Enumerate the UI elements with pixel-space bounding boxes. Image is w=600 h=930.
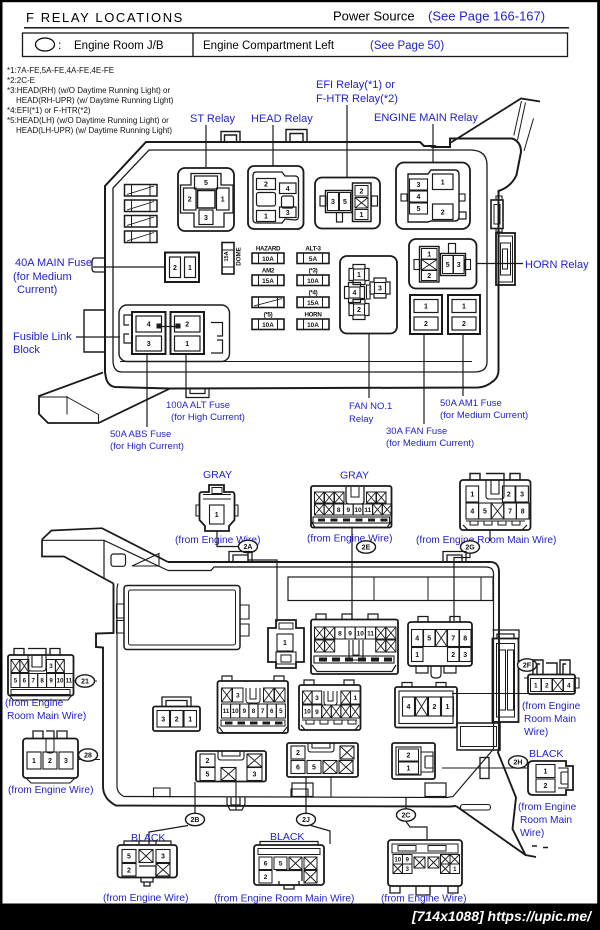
svg-text:2C: 2C [402,813,411,820]
svg-text:30A FAN Fuse: 30A FAN Fuse [386,426,447,437]
svg-text:15A: 15A [307,300,319,307]
svg-text:11: 11 [364,507,371,514]
svg-text:3: 3 [49,663,53,670]
svg-text:Power Source: Power Source [333,9,415,24]
svg-text:6: 6 [296,765,300,772]
svg-text:HEAD(RH-UPR) (w/ Daytime Runni: HEAD(RH-UPR) (w/ Daytime Running Light) [16,96,174,105]
svg-text:8: 8 [40,678,44,685]
svg-text:7: 7 [32,678,36,685]
svg-text:2: 2 [427,273,431,280]
svg-text:2: 2 [507,492,511,499]
svg-text:4: 4 [286,186,290,193]
svg-text:2: 2 [175,716,179,723]
svg-text:5: 5 [127,854,131,861]
svg-text:1: 1 [32,758,36,765]
svg-text:10: 10 [304,709,311,716]
svg-text:11: 11 [66,678,73,685]
svg-text:*4:EFI(*1) or F-HTR(*2): *4:EFI(*1) or F-HTR(*2) [7,106,91,115]
svg-text:2F: 2F [523,663,532,670]
svg-text:3: 3 [204,215,208,222]
svg-text:6: 6 [264,861,268,868]
svg-text:1: 1 [446,704,450,711]
svg-text:9: 9 [315,709,319,716]
svg-text:5: 5 [204,180,208,187]
svg-text:(from Engine Wire): (from Engine Wire) [8,785,93,796]
svg-text:7: 7 [451,636,455,643]
svg-text:(from Engine Room Main Wire): (from Engine Room Main Wire) [214,894,354,905]
svg-text:3: 3 [253,772,257,779]
svg-text:AM2: AM2 [262,268,275,275]
svg-text:1: 1 [215,512,219,519]
svg-text:21: 21 [81,679,89,686]
svg-text:2: 2 [185,322,189,329]
svg-text:6: 6 [23,678,27,685]
svg-text:3: 3 [378,286,382,293]
svg-text:3: 3 [161,716,165,723]
svg-text:Wire): Wire) [524,727,548,738]
svg-text:10: 10 [354,507,362,514]
svg-text:(from Engine: (from Engine [522,701,581,712]
svg-text:6: 6 [270,708,274,715]
svg-text:(for Medium: (for Medium [13,271,72,283]
svg-text:1: 1 [462,304,466,311]
svg-text:5: 5 [206,772,210,779]
svg-text:(for High Current): (for High Current) [171,412,245,423]
svg-text:2A: 2A [244,544,253,551]
svg-text:HAZARD: HAZARD [256,246,281,253]
svg-text:(See Page 50): (See Page 50) [370,40,444,52]
svg-text:15A: 15A [224,251,230,261]
svg-text:10A: 10A [262,256,274,263]
svg-text:BLACK: BLACK [131,832,165,844]
svg-text:8: 8 [337,507,341,514]
svg-text:7: 7 [508,509,512,516]
svg-text:10A: 10A [307,322,319,329]
svg-text:2B: 2B [191,817,200,824]
svg-text:2: 2 [206,758,210,765]
svg-text:50A AM1 Fuse: 50A AM1 Fuse [440,398,502,409]
svg-text:1: 1 [357,272,361,279]
svg-text:8: 8 [521,509,525,516]
svg-text:100A ALT Fuse: 100A ALT Fuse [166,400,230,411]
svg-text:F RELAY LOCATIONS: F RELAY LOCATIONS [26,10,184,25]
svg-text:Room Main: Room Main [524,714,576,725]
svg-text:4: 4 [415,636,419,643]
svg-text:5: 5 [312,765,316,772]
svg-text:3: 3 [236,692,240,699]
svg-text:15A: 15A [262,278,274,285]
svg-text:2: 2 [407,753,411,760]
svg-text:*1:7A-FE,5A-FE,4A-FE,4E-FE: *1:7A-FE,5A-FE,4A-FE,4E-FE [7,66,114,75]
svg-text:1: 1 [415,652,419,659]
svg-text:2: 2 [264,182,268,189]
svg-text:HORN Relay: HORN Relay [525,259,589,271]
svg-text:10A: 10A [262,322,274,329]
svg-text:HEAD Relay: HEAD Relay [251,113,313,125]
svg-text:1: 1 [185,341,189,348]
svg-text:40A MAIN Fuse: 40A MAIN Fuse [15,257,92,269]
svg-text:1: 1 [221,197,225,204]
svg-text:3: 3 [520,492,524,499]
svg-text:1: 1 [360,212,364,219]
svg-text:2: 2 [462,321,466,328]
svg-text:2: 2 [433,704,437,711]
svg-text:1: 1 [544,769,548,776]
svg-text:2: 2 [296,750,300,757]
svg-text:Engine Compartment Left: Engine Compartment Left [203,40,335,52]
svg-text:Engine Room J/B: Engine Room J/B [74,40,164,52]
svg-text:*2:2C-E: *2:2C-E [7,76,35,85]
svg-text:5A: 5A [309,256,318,263]
svg-text:EFI Relay(*1) or: EFI Relay(*1) or [316,79,395,91]
svg-text:GRAY: GRAY [340,470,369,482]
svg-text:2: 2 [48,758,52,765]
svg-text:1: 1 [283,640,287,647]
svg-text:10A: 10A [307,278,319,285]
svg-text:2: 2 [188,197,192,204]
svg-text:[714x1088] https://upic.me/: [714x1088] https://upic.me/ [411,908,593,924]
svg-text:1: 1 [424,304,428,311]
svg-text:3: 3 [417,182,421,189]
svg-text:4: 4 [567,682,571,689]
svg-text:4: 4 [353,290,357,297]
svg-text:1: 1 [534,682,538,689]
svg-text:9: 9 [347,507,351,514]
svg-text:5: 5 [279,861,283,868]
svg-text:(from Engine Room Main Wire): (from Engine Room Main Wire) [416,535,556,546]
svg-text:2: 2 [544,783,548,790]
svg-text:(from Engine Wire): (from Engine Wire) [307,534,392,545]
svg-text:5: 5 [279,708,283,715]
svg-text:(from Engine Wire): (from Engine Wire) [381,894,466,905]
svg-text:28: 28 [84,753,92,760]
svg-text:2E: 2E [362,545,371,552]
svg-text:5: 5 [446,262,450,269]
svg-text:5: 5 [14,678,18,685]
svg-text:2: 2 [357,307,361,314]
svg-text:3: 3 [331,199,335,206]
svg-text:4: 4 [407,704,411,711]
svg-text:50A ABS Fuse: 50A ABS Fuse [110,429,171,440]
svg-text:1: 1 [353,695,357,702]
svg-text:ST Relay: ST Relay [190,113,236,125]
svg-text:ENGINE MAIN Relay: ENGINE MAIN Relay [374,112,478,124]
svg-text:1: 1 [441,179,445,186]
svg-text:1: 1 [188,716,192,723]
svg-text:8: 8 [463,636,467,643]
svg-text:2: 2 [264,874,268,881]
svg-text:2: 2 [441,209,445,216]
svg-text:11: 11 [223,708,230,715]
svg-text:9: 9 [243,708,247,715]
svg-text:FAN NO.1: FAN NO.1 [349,401,392,412]
svg-text:Current): Current) [17,284,57,296]
svg-text:Block: Block [13,344,40,356]
svg-text:3: 3 [315,695,319,702]
svg-text:(for Medium Current): (for Medium Current) [386,438,474,449]
svg-text:1: 1 [264,214,268,221]
svg-text:(for High Current): (for High Current) [110,441,184,452]
svg-text:(*3): (*3) [309,268,318,275]
svg-text:9: 9 [348,630,352,637]
svg-text:2H: 2H [514,760,523,767]
svg-text:Wire): Wire) [520,828,544,839]
svg-text:Room Main: Room Main [520,815,572,826]
svg-text:5: 5 [427,636,431,643]
svg-text:7: 7 [261,708,265,715]
svg-text:10: 10 [394,857,401,863]
svg-text:3: 3 [161,854,165,861]
svg-text:4: 4 [147,322,151,329]
svg-text:2G: 2G [465,545,475,552]
svg-text:2: 2 [424,321,428,328]
svg-text:1: 1 [407,766,411,773]
svg-text:11: 11 [367,630,374,637]
svg-text::: : [58,38,61,52]
svg-text:HORN: HORN [304,312,322,319]
svg-text:2: 2 [127,867,131,874]
svg-text:(for Medium Current): (for Medium Current) [440,410,528,421]
svg-text:(from Engine Wire): (from Engine Wire) [103,893,188,904]
svg-text:DOME: DOME [236,247,243,266]
svg-text:GRAY: GRAY [203,469,232,481]
svg-text:*5:HEAD(LH) (w/O Daytime Runni: *5:HEAD(LH) (w/O Daytime Running Light) … [7,116,169,125]
svg-text:3: 3 [64,758,68,765]
svg-text:2: 2 [360,188,364,195]
svg-text:9: 9 [49,678,53,685]
svg-text:2: 2 [545,682,549,689]
svg-text:1: 1 [188,265,192,272]
svg-text:(*4): (*4) [309,290,318,297]
svg-text:2J: 2J [302,817,310,824]
svg-text:ALT-3: ALT-3 [305,246,321,253]
svg-text:*3:HEAD(RH) (w/O Daytime Runni: *3:HEAD(RH) (w/O Daytime Running Light) … [7,86,170,95]
svg-text:2: 2 [451,652,455,659]
svg-text:(See Page 166-167): (See Page 166-167) [428,9,545,24]
svg-text:8: 8 [338,630,342,637]
svg-text:F-HTR Relay(*2): F-HTR Relay(*2) [316,93,398,105]
svg-text:5: 5 [417,206,421,213]
svg-text:3: 3 [463,652,467,659]
svg-text:5: 5 [483,509,487,516]
svg-text:3: 3 [457,262,461,269]
svg-text:1: 1 [427,251,431,258]
svg-text:(*5): (*5) [264,312,273,319]
svg-text:10: 10 [57,678,64,685]
svg-text:HEAD(LH-UPR) (w/ Daytime Runni: HEAD(LH-UPR) (w/ Daytime Running Light) [16,126,172,135]
svg-text:3: 3 [147,341,151,348]
svg-text:10: 10 [357,630,365,637]
svg-text:Room Main Wire): Room Main Wire) [7,711,86,722]
svg-text:Relay: Relay [349,414,374,425]
svg-text:3: 3 [286,210,290,217]
svg-text:2: 2 [173,265,177,272]
svg-text:BLACK: BLACK [529,748,563,760]
svg-text:10: 10 [232,708,239,715]
svg-text:1: 1 [470,492,474,499]
svg-text:4: 4 [417,194,421,201]
svg-text:Fusible Link: Fusible Link [13,331,72,343]
svg-text:(from Engine: (from Engine [5,698,64,709]
svg-text:(from Engine: (from Engine [518,802,577,813]
svg-text:5: 5 [343,199,347,206]
svg-text:4: 4 [470,509,474,516]
svg-text:8: 8 [252,708,256,715]
